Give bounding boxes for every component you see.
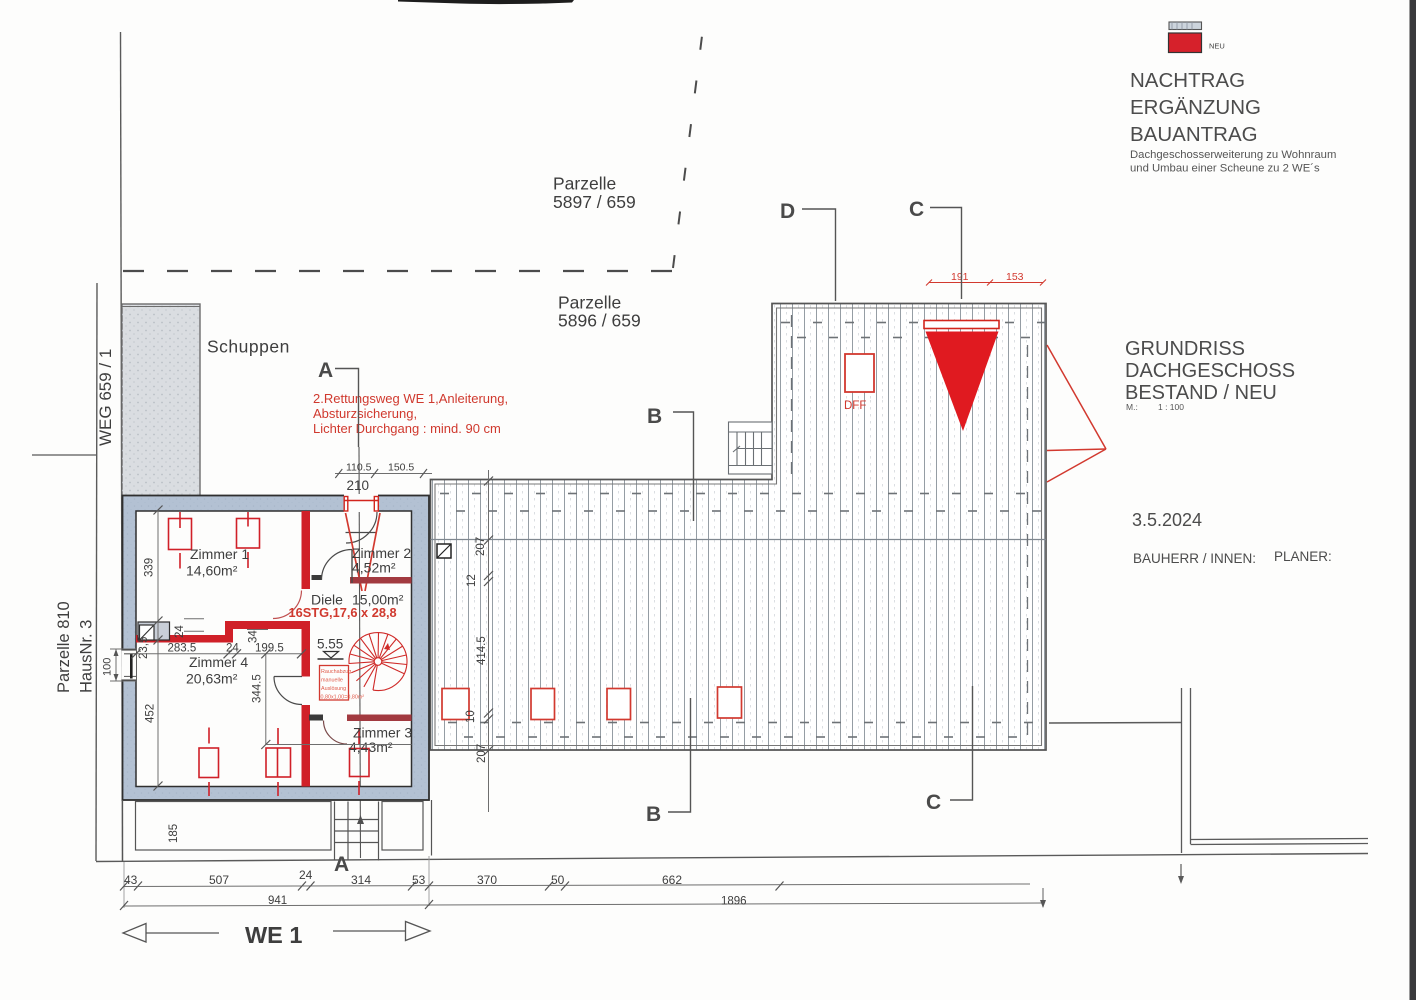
svg-text:370: 370 bbox=[477, 873, 497, 887]
svg-text:24: 24 bbox=[226, 643, 239, 655]
svg-text:12: 12 bbox=[466, 574, 478, 587]
svg-text:B: B bbox=[647, 405, 662, 428]
svg-text:BAUHERR / INNEN:: BAUHERR / INNEN: bbox=[1133, 551, 1256, 566]
svg-text:BAUANTRAG: BAUANTRAG bbox=[1130, 123, 1258, 146]
svg-text:4,43m²: 4,43m² bbox=[349, 739, 393, 755]
svg-text:und Umbau einer Scheune zu 2 W: und Umbau einer Scheune zu 2 WE´s bbox=[1130, 163, 1320, 175]
svg-text:M.:: M.: bbox=[1126, 402, 1138, 412]
svg-text:WE 1: WE 1 bbox=[245, 922, 302, 948]
svg-text:NACHTRAG: NACHTRAG bbox=[1130, 69, 1245, 92]
svg-text:452: 452 bbox=[145, 704, 157, 723]
svg-text:10: 10 bbox=[465, 710, 477, 723]
svg-text:2.Rettungsweg WE 1,Anleiterung: 2.Rettungsweg WE 1,Anleiterung, bbox=[313, 391, 508, 406]
svg-text:BESTAND / NEU: BESTAND / NEU bbox=[1125, 382, 1277, 404]
svg-text:207: 207 bbox=[475, 537, 487, 556]
svg-text:GRUNDRISS: GRUNDRISS bbox=[1125, 338, 1245, 360]
svg-text:153: 153 bbox=[1006, 271, 1024, 283]
svg-text:C: C bbox=[926, 791, 941, 814]
svg-text:Parzelle: Parzelle bbox=[558, 293, 621, 313]
svg-text:662: 662 bbox=[662, 873, 682, 887]
svg-text:Zimmer 4: Zimmer 4 bbox=[189, 654, 248, 670]
svg-text:3.5.2024: 3.5.2024 bbox=[1132, 510, 1202, 530]
svg-text:A: A bbox=[318, 359, 333, 382]
svg-text:5896 / 659: 5896 / 659 bbox=[558, 311, 641, 331]
svg-text:414.5: 414.5 bbox=[476, 636, 488, 665]
svg-text:507: 507 bbox=[209, 873, 229, 887]
svg-text:DFF: DFF bbox=[844, 400, 866, 412]
svg-text:941: 941 bbox=[268, 895, 287, 907]
svg-text:Lichter Durchgang : mind. 90 c: Lichter Durchgang : mind. 90 cm bbox=[313, 421, 501, 436]
svg-text:23,5: 23,5 bbox=[138, 637, 150, 659]
svg-text:185: 185 bbox=[168, 824, 180, 843]
svg-text:16STG,17,6 x 28,8: 16STG,17,6 x 28,8 bbox=[289, 605, 397, 620]
svg-text:NEU: NEU bbox=[1209, 42, 1225, 51]
svg-text:283.5: 283.5 bbox=[168, 643, 197, 655]
svg-text:D: D bbox=[780, 200, 795, 223]
svg-text:Absturzsicherung,: Absturzsicherung, bbox=[313, 406, 417, 421]
svg-text:43: 43 bbox=[124, 873, 138, 887]
svg-text:344.5: 344.5 bbox=[252, 674, 264, 703]
svg-text:100: 100 bbox=[102, 658, 114, 676]
svg-text:1896: 1896 bbox=[721, 896, 747, 908]
svg-text:ERGÄNZUNG: ERGÄNZUNG bbox=[1130, 96, 1261, 119]
svg-text:14,60m²: 14,60m² bbox=[186, 563, 238, 579]
svg-text:HausNr. 3: HausNr. 3 bbox=[78, 620, 96, 693]
svg-text:20,63m²: 20,63m² bbox=[186, 671, 238, 687]
svg-text:34: 34 bbox=[248, 630, 260, 643]
svg-text:191: 191 bbox=[951, 271, 969, 283]
svg-text:WEG 659 / 1: WEG 659 / 1 bbox=[96, 349, 115, 446]
svg-text:207: 207 bbox=[476, 744, 488, 763]
svg-text:Schuppen: Schuppen bbox=[207, 337, 290, 357]
svg-text:DACHGESCHOSS: DACHGESCHOSS bbox=[1125, 360, 1295, 382]
svg-text:199.5: 199.5 bbox=[255, 643, 284, 655]
svg-text:Zimmer 1: Zimmer 1 bbox=[190, 546, 249, 562]
svg-text:314: 314 bbox=[351, 873, 371, 887]
svg-text:Dachgeschosserweiterung zu Woh: Dachgeschosserweiterung zu Wohnraum bbox=[1130, 149, 1336, 161]
svg-text:5897 / 659: 5897 / 659 bbox=[553, 192, 636, 212]
svg-text:A: A bbox=[334, 853, 349, 876]
svg-text:150.5: 150.5 bbox=[388, 462, 414, 474]
svg-text:1 : 100: 1 : 100 bbox=[1158, 402, 1184, 412]
svg-text:Parzelle 810: Parzelle 810 bbox=[55, 601, 73, 693]
svg-text:24: 24 bbox=[299, 868, 313, 882]
svg-text:manuelle: manuelle bbox=[321, 678, 343, 684]
svg-text:339: 339 bbox=[144, 558, 156, 577]
svg-text:110.5: 110.5 bbox=[346, 462, 372, 474]
svg-text:Auslösung: Auslösung bbox=[321, 686, 346, 692]
svg-text:4,52m²: 4,52m² bbox=[352, 560, 396, 576]
svg-text:50: 50 bbox=[551, 873, 565, 887]
svg-text:210: 210 bbox=[347, 478, 370, 493]
svg-text:53: 53 bbox=[412, 873, 426, 887]
svg-text:Parzelle: Parzelle bbox=[553, 174, 616, 194]
svg-text:5.55: 5.55 bbox=[317, 637, 343, 652]
svg-text:B: B bbox=[646, 803, 661, 826]
svg-text:Rauchabzug: Rauchabzug bbox=[321, 669, 351, 675]
svg-text:PLANER:: PLANER: bbox=[1274, 549, 1332, 564]
svg-text:0,80x1,00=0,80m²: 0,80x1,00=0,80m² bbox=[321, 695, 365, 701]
svg-text:C: C bbox=[909, 198, 924, 221]
